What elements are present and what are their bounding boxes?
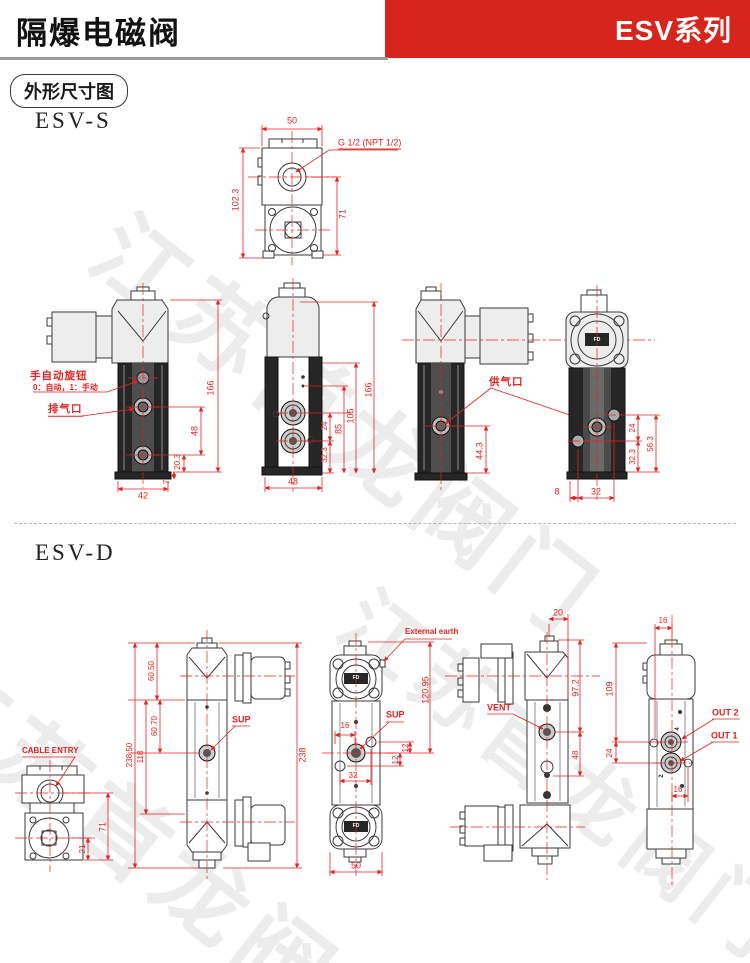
sup-label: SUP [386, 711, 405, 720]
sup-label: SUP [232, 716, 251, 725]
dim-48: 48 [572, 751, 580, 760]
dim-97-2: 97.2 [572, 679, 581, 697]
esv-d-cable-view [15, 757, 113, 872]
esv-d-front-view [322, 633, 452, 876]
brand-logo: FD [594, 337, 601, 343]
port-thread-label: G 1/2 (NPT 1/2) [338, 139, 401, 150]
brand-logo: FD [353, 675, 360, 681]
dim-48: 48 [288, 478, 298, 487]
dim-16: 16 [341, 722, 350, 730]
esv-d-rear-view [612, 615, 740, 885]
dim-16-bottom: 16 [674, 786, 683, 794]
dim-8: 8 [554, 488, 559, 497]
dim-118: 118 [137, 751, 145, 764]
dim-50: 50 [287, 117, 297, 126]
dim-24: 24 [321, 422, 329, 431]
dim-60-50: 60.50 [148, 661, 156, 681]
dim-120-95: 120.95 [422, 676, 431, 704]
datasheet-page: 江苏首龙阀门 江苏首龙阀门 江苏首龙阀门 隔爆电磁阀 ESV系列 外形尺寸图 E… [0, 0, 750, 963]
dim-32: 32 [349, 772, 358, 780]
model-title-esv-d: ESV-D [35, 540, 116, 566]
dim-166: 166 [365, 382, 374, 397]
dim-12: 12 [392, 756, 400, 765]
dim-12: 12 [402, 744, 410, 753]
manual-knob-sublabel: 0：自动，1：手动 [33, 384, 98, 392]
cable-entry-label: CABLE ENTRY [22, 747, 79, 755]
external-earth-label: External earth [405, 628, 458, 636]
dim-44-3: 44.3 [476, 442, 485, 460]
dim-109: 109 [606, 681, 615, 696]
dim-48: 48 [191, 426, 200, 436]
dim-60-70: 60.70 [151, 716, 159, 736]
vent-label: VENT [487, 704, 511, 713]
out1-label: OUT 1 [711, 732, 738, 741]
supply-port-label: 供气口 [489, 377, 524, 388]
section-label: 外形尺寸图 [10, 74, 128, 108]
dim-32: 32 [591, 488, 601, 497]
esv-d-side-view-2 [445, 614, 600, 880]
dim-71: 71 [339, 209, 348, 219]
dim-20: 20 [553, 609, 563, 618]
dim-24: 24 [629, 424, 637, 433]
esv-s-rear-view [566, 285, 660, 502]
dim-238: 238 [299, 747, 308, 762]
dim-166: 166 [207, 380, 216, 395]
dim-50: 50 [351, 862, 361, 871]
exhaust-port-label: 排气口 [48, 404, 83, 417]
model-title-esv-s: ESV-S [35, 108, 112, 134]
port-number-2: 2 [659, 774, 665, 777]
out2-label: OUT 2 [712, 709, 739, 718]
dim-85: 85 [335, 424, 344, 434]
dim-32-3: 32.3 [321, 447, 329, 463]
port-number-4: 4 [675, 727, 681, 730]
brand-logo: FD [353, 823, 360, 829]
dim-42: 42 [138, 492, 148, 501]
dim-102-3: 102.3 [232, 189, 241, 212]
dim-32-3: 32.3 [629, 449, 637, 465]
dim-24: 24 [606, 749, 614, 758]
dim-20-3: 20.3 [174, 454, 182, 470]
dim-71: 71 [99, 822, 108, 832]
manual-knob-label: 手自动旋钮 [30, 371, 88, 382]
dim-56-3: 56.3 [647, 436, 655, 452]
dim-21: 21 [79, 845, 87, 854]
dim-105: 105 [347, 408, 356, 423]
dim-16-top: 16 [659, 617, 668, 625]
dim-7: 7 [163, 480, 171, 484]
dim-238-50: 238.50 [126, 743, 134, 767]
